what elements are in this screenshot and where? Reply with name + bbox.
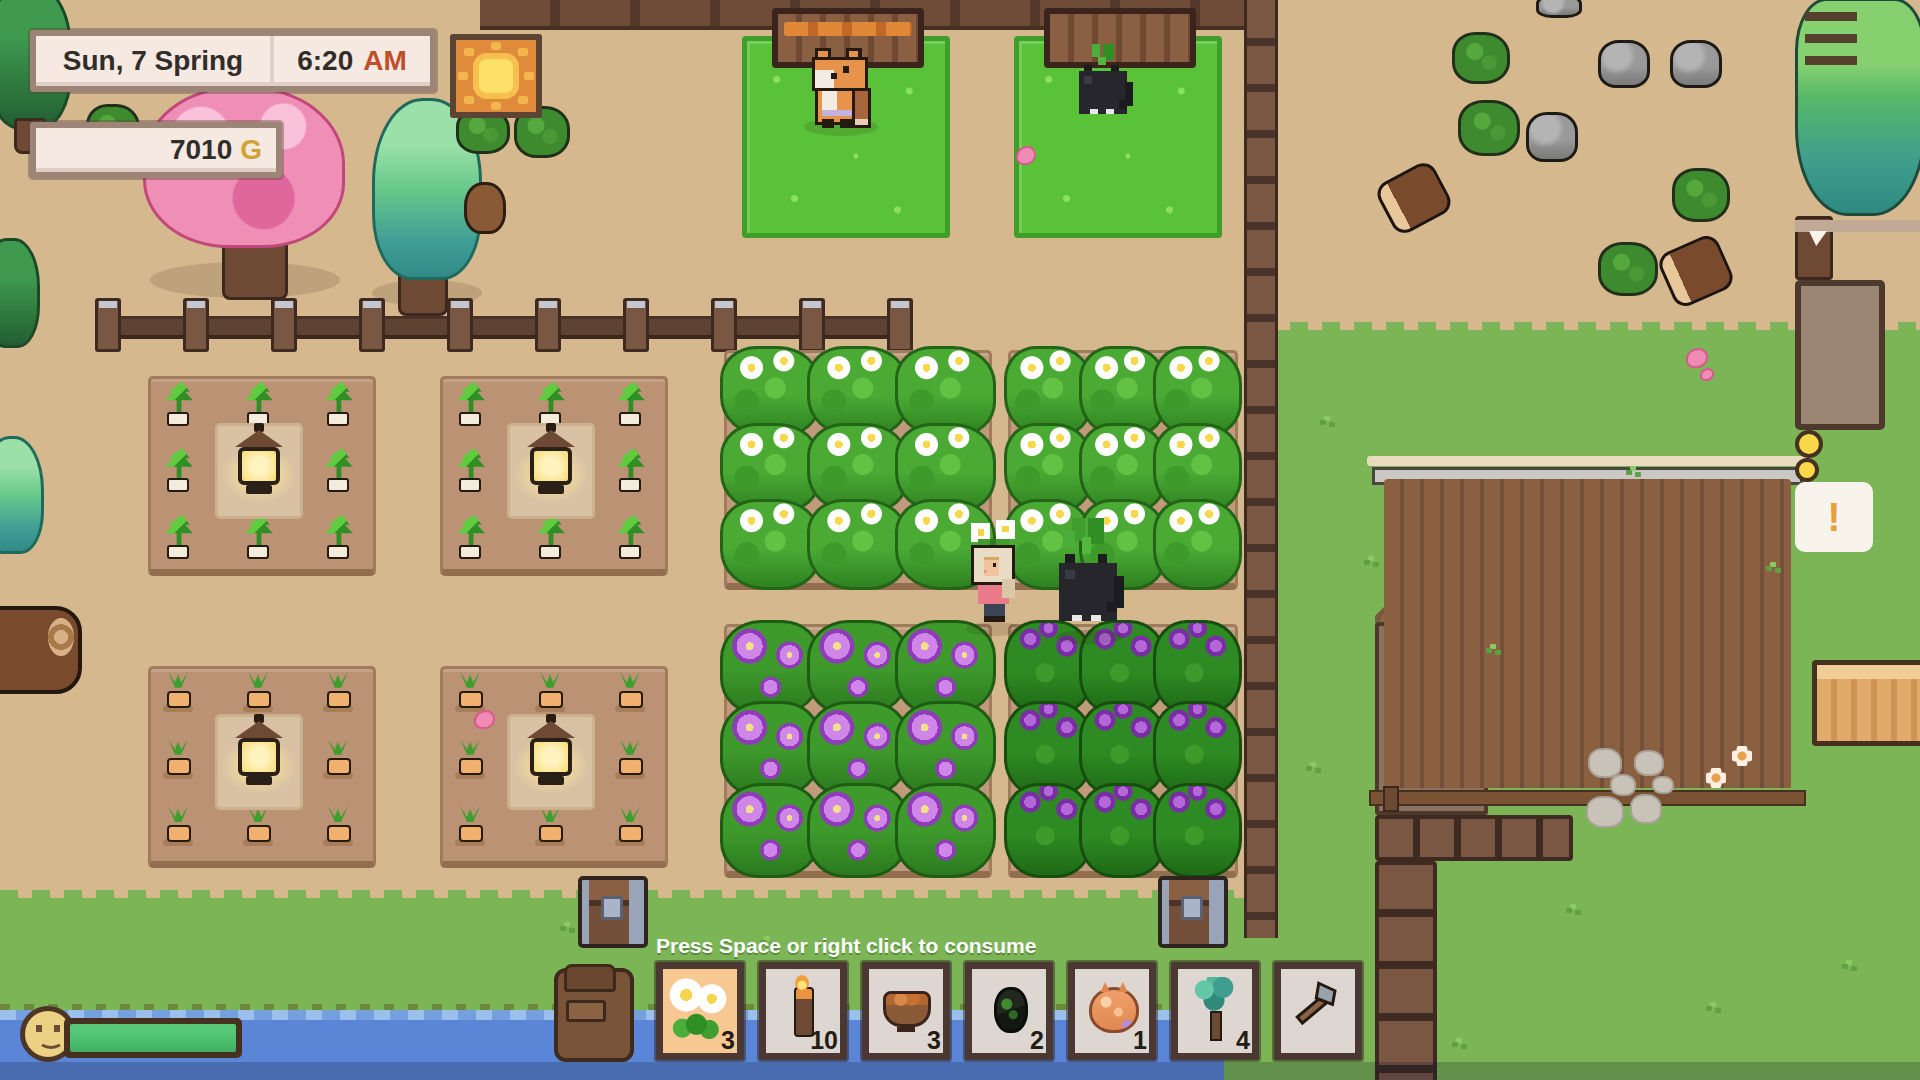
- lamp-post[interactable]: [507, 714, 595, 810]
- small-stone: [1610, 774, 1636, 796]
- hotbar-slot-shell[interactable]: 1: [1068, 962, 1156, 1060]
- leek-crop[interactable]: [321, 382, 357, 428]
- fence-vertical: [1244, 0, 1278, 938]
- grass-tuft: [1706, 1006, 1712, 1011]
- turnip-crop[interactable]: [533, 806, 567, 846]
- black-cat-pen[interactable]: [1068, 40, 1138, 134]
- purple-tulip-bush[interactable]: [1153, 783, 1242, 878]
- consume-hint: Press Space or right click to consume: [656, 934, 1036, 958]
- player-character: [962, 520, 1024, 638]
- turnip-crop[interactable]: [161, 739, 195, 779]
- small-stone: [1652, 776, 1674, 794]
- leek-crop[interactable]: [533, 382, 569, 428]
- rock[interactable]: [1598, 40, 1650, 88]
- fence-post: [623, 298, 649, 352]
- wood-pile: [1812, 660, 1920, 746]
- fence-post: [359, 298, 385, 352]
- bush: [1458, 100, 1520, 156]
- fox[interactable]: [800, 44, 880, 132]
- item-count: 1: [1133, 1026, 1147, 1055]
- turnip-crop[interactable]: [321, 806, 355, 846]
- item-count: 10: [810, 1026, 838, 1055]
- grass-tuft: [1452, 1042, 1458, 1047]
- fence-post: [535, 298, 561, 352]
- leek-crop[interactable]: [613, 515, 649, 561]
- game-viewport: ! Sun, 7 Spring 6:20 AM 7010 G Press Spa…: [0, 0, 1920, 1080]
- leek-crop[interactable]: [613, 448, 649, 494]
- hotbar-slot-axe[interactable]: [1274, 962, 1362, 1060]
- time-label: 6:20: [297, 45, 353, 77]
- small-stone: [1630, 794, 1662, 824]
- grass-tuft: [560, 926, 566, 931]
- lamp-post[interactable]: [215, 423, 303, 519]
- grass-tuft: [1566, 908, 1572, 913]
- leek-crop[interactable]: [613, 382, 649, 428]
- trough-food: [784, 22, 912, 36]
- turnip-crop[interactable]: [161, 806, 195, 846]
- wood-log[interactable]: [1373, 158, 1456, 237]
- hotbar: 3 10 3 2 1 4: [656, 962, 1362, 1060]
- turnip-crop[interactable]: [453, 806, 487, 846]
- grass-tuft: [1320, 420, 1326, 425]
- fence-post: [887, 298, 913, 352]
- quest-board-tree: !: [1795, 0, 1920, 232]
- fence-post: [183, 298, 209, 352]
- cream-flower: [1706, 768, 1726, 788]
- hotbar-slot-sapling[interactable]: 4: [1171, 962, 1259, 1060]
- turnip-crop[interactable]: [161, 672, 195, 712]
- leek-crop[interactable]: [241, 382, 277, 428]
- stamina-bar: [64, 1018, 242, 1058]
- bush: [1672, 168, 1730, 222]
- backpack-icon[interactable]: [554, 968, 634, 1062]
- fence-post: [711, 298, 737, 352]
- turnip-crop[interactable]: [453, 739, 487, 779]
- meridiem-label: AM: [363, 45, 407, 77]
- item-count: 3: [721, 1026, 735, 1055]
- turnip-crop[interactable]: [613, 672, 647, 712]
- grass-tuft: [1842, 964, 1848, 969]
- grass-tuft: [1486, 648, 1492, 653]
- fence-rail: [95, 316, 907, 339]
- turnip-crop[interactable]: [241, 672, 275, 712]
- clay-bowl-icon: [883, 991, 931, 1027]
- item-count: 3: [927, 1026, 941, 1055]
- stamina-fill: [70, 1024, 236, 1052]
- leek-crop[interactable]: [321, 448, 357, 494]
- turnip-crop[interactable]: [453, 672, 487, 712]
- grass-tuft: [1626, 470, 1632, 475]
- currency-label: G: [240, 134, 262, 166]
- money-panel: 7010 G: [30, 122, 282, 178]
- black-cat-field[interactable]: [1046, 518, 1130, 644]
- acorn: [464, 182, 506, 234]
- hotbar-slot-torch[interactable]: 10: [759, 962, 847, 1060]
- yard-fence: [1375, 861, 1437, 1080]
- turnip-crop[interactable]: [321, 739, 355, 779]
- hotbar-slot-bowl[interactable]: 3: [862, 962, 950, 1060]
- grass-tuft: [1766, 566, 1772, 571]
- dark-seed-icon: [994, 987, 1028, 1033]
- lantern-icon: [1795, 458, 1819, 482]
- turnip-crop[interactable]: [321, 672, 355, 712]
- fence-post: [447, 298, 473, 352]
- wood-log[interactable]: [1655, 231, 1737, 310]
- item-count: 4: [1236, 1026, 1250, 1055]
- grass-tuft: [1364, 560, 1370, 565]
- grass-tuft: [1306, 766, 1312, 771]
- fence-post: [271, 298, 297, 352]
- purple-bloom-bush[interactable]: [807, 783, 908, 878]
- rock[interactable]: [1526, 112, 1578, 162]
- leek-crop[interactable]: [453, 382, 489, 428]
- daisy-bush[interactable]: [720, 499, 821, 590]
- sun-icon: [450, 34, 542, 118]
- bush: [1452, 32, 1510, 84]
- bush: [1598, 242, 1658, 296]
- quest-alert-mark: !: [1827, 495, 1840, 540]
- screen-edge-shade: [0, 1062, 1920, 1080]
- item-count: 2: [1030, 1026, 1044, 1055]
- leek-crop[interactable]: [161, 448, 197, 494]
- date-label: Sun, 7 Spring: [36, 36, 274, 86]
- leek-crop[interactable]: [241, 515, 277, 561]
- leek-crop[interactable]: [453, 448, 489, 494]
- cottage-house: [1375, 470, 1800, 792]
- small-stone: [1586, 796, 1624, 828]
- lamp-post[interactable]: [507, 423, 595, 519]
- leek-crop[interactable]: [533, 515, 569, 561]
- daisy-bush[interactable]: [1153, 499, 1242, 590]
- lamp-post[interactable]: [215, 714, 303, 810]
- daisy-bush[interactable]: [807, 499, 908, 590]
- rock[interactable]: [1670, 40, 1722, 88]
- purple-bloom-bush[interactable]: [720, 783, 821, 878]
- tree-sapling-icon: [1192, 977, 1236, 1043]
- date-time-panel: Sun, 7 Spring 6:20 AM: [30, 30, 436, 92]
- lantern-icon: [1795, 430, 1823, 458]
- leek-crop[interactable]: [161, 515, 197, 561]
- small-stone: [1634, 750, 1664, 776]
- fence-post: [799, 298, 825, 352]
- yard-fence: [1375, 815, 1573, 861]
- fallen-log[interactable]: [0, 606, 82, 694]
- fence-post: [95, 298, 121, 352]
- tree[interactable]: [0, 238, 40, 348]
- turnip-crop[interactable]: [613, 739, 647, 779]
- storage-chest[interactable]: [578, 876, 648, 948]
- quest-alert-bubble[interactable]: !: [1795, 482, 1873, 552]
- hotbar-slot-daisy[interactable]: 3: [656, 962, 744, 1060]
- hotbar-slot-seed[interactable]: 2: [965, 962, 1053, 1060]
- turnip-crop[interactable]: [241, 806, 275, 846]
- money-amount: 7010: [170, 134, 232, 166]
- purple-bloom-bush[interactable]: [895, 783, 996, 878]
- turnip-crop[interactable]: [613, 806, 647, 846]
- leek-crop[interactable]: [453, 515, 489, 561]
- cream-flower: [1732, 746, 1752, 766]
- turnip-crop[interactable]: [533, 672, 567, 712]
- leek-crop[interactable]: [161, 382, 197, 428]
- quest-board[interactable]: [1795, 280, 1885, 430]
- rock[interactable]: [1536, 0, 1582, 18]
- orange-shell-icon: [1089, 987, 1139, 1033]
- axe-icon: [1285, 977, 1345, 1037]
- tree[interactable]: [0, 436, 44, 554]
- leek-crop[interactable]: [321, 515, 357, 561]
- storage-chest[interactable]: [1158, 876, 1228, 948]
